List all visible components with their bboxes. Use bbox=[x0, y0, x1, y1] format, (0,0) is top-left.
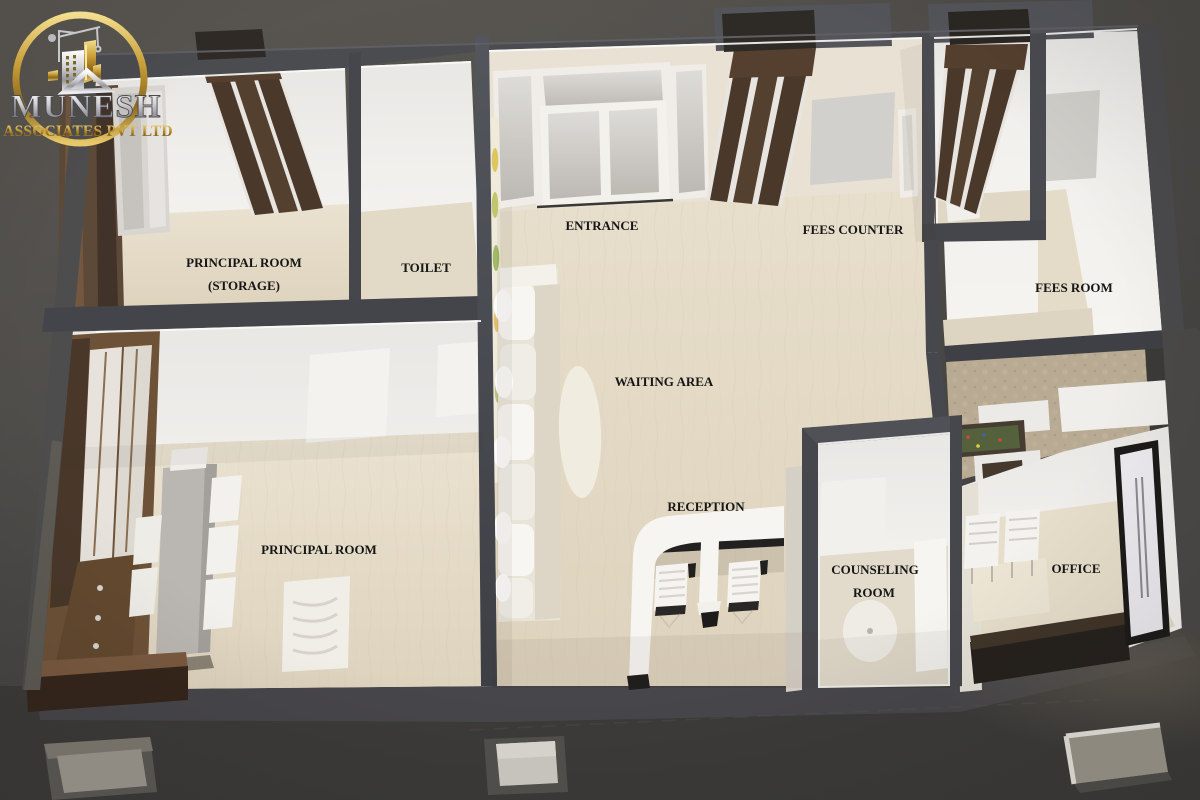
svg-text:MUNESH: MUNESH bbox=[11, 89, 162, 125]
svg-text:FEES COUNTER: FEES COUNTER bbox=[803, 222, 904, 237]
svg-text:RECEPTION: RECEPTION bbox=[667, 499, 745, 514]
svg-text:PRINCIPAL ROOM: PRINCIPAL ROOM bbox=[261, 542, 377, 557]
svg-text:ROOM: ROOM bbox=[853, 585, 895, 600]
svg-text:WAITING AREA: WAITING AREA bbox=[615, 374, 714, 389]
svg-text:COUNSELING: COUNSELING bbox=[831, 562, 918, 577]
svg-text:ASSOCIATES PVT LTD: ASSOCIATES PVT LTD bbox=[3, 123, 173, 140]
svg-text:OFFICE: OFFICE bbox=[1051, 561, 1100, 576]
svg-text:PRINCIPAL ROOM: PRINCIPAL ROOM bbox=[186, 255, 302, 270]
svg-text:(STORAGE): (STORAGE) bbox=[208, 278, 280, 293]
svg-text:FEES ROOM: FEES ROOM bbox=[1035, 280, 1113, 295]
svg-text:TOILET: TOILET bbox=[401, 260, 451, 275]
svg-text:ENTRANCE: ENTRANCE bbox=[566, 218, 639, 233]
